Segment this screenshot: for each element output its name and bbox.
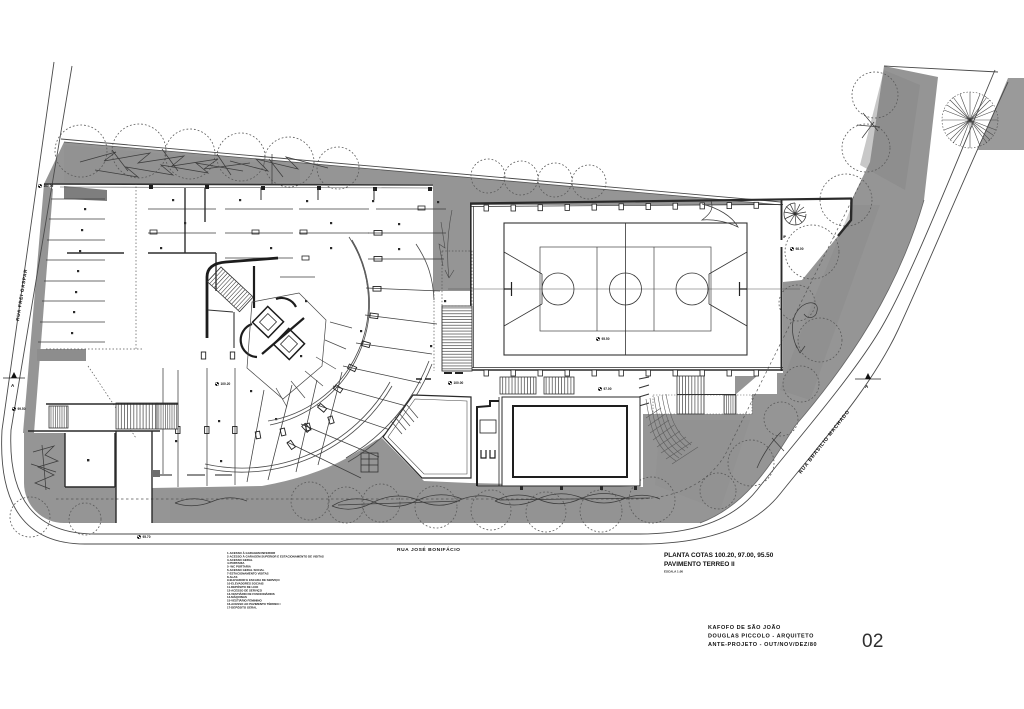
- svg-text:100.00: 100.00: [454, 381, 464, 385]
- svg-text:DOUGLAS PICCOLO - ARQUITETO: DOUGLAS PICCOLO - ARQUITETO: [708, 634, 814, 640]
- svg-text:100.20: 100.20: [221, 382, 231, 386]
- svg-text:PAVIMENTO TERREO II: PAVIMENTO TERREO II: [664, 561, 735, 568]
- svg-text:ANTE-PROJETO - OUT/NOV/DEZ/80: ANTE-PROJETO - OUT/NOV/DEZ/80: [708, 642, 817, 648]
- svg-text:17-DEPÓSITO GERAL: 17-DEPÓSITO GERAL: [227, 604, 257, 609]
- svg-text:95.70: 95.70: [143, 535, 151, 539]
- svg-text:KAFOFO DE SÃO JOÃO: KAFOFO DE SÃO JOÃO: [708, 624, 781, 631]
- svg-text:02: 02: [862, 631, 884, 652]
- svg-text:ESCALA 1:50: ESCALA 1:50: [664, 570, 683, 574]
- svg-text:95.50: 95.50: [602, 337, 610, 341]
- svg-text:99.50: 99.50: [18, 407, 26, 411]
- svg-text:97.00: 97.00: [604, 387, 612, 391]
- svg-text:PLANTA COTAS 100.20, 97.00: PLANTA COTAS 100.20, 97.00, 95.50: [664, 552, 774, 559]
- svg-text:98.00: 98.00: [796, 247, 804, 251]
- svg-text:100.00: 100.00: [44, 184, 54, 188]
